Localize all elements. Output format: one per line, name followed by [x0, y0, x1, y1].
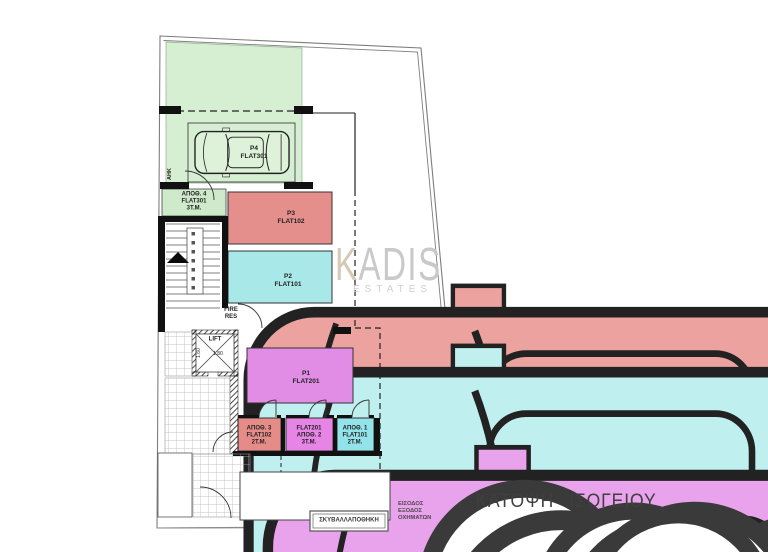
staircase	[166, 224, 220, 308]
storage-4-line3: 3Τ.Μ.	[182, 206, 207, 213]
lift-label: LIFT	[209, 337, 222, 344]
gate-line3: ΟΧΗΜΑΤΩΝ	[398, 515, 431, 522]
watermark-subtitle: ESTATES	[353, 285, 432, 295]
storage-4-label: ΑΠΟΘ. 4 FLAT301 3Τ.Μ.	[182, 192, 207, 213]
storage-2-label: FLAT201 ΑΠΟΘ. 2 3Τ.Μ.	[297, 426, 322, 447]
storage-4-line2: FLAT301	[182, 199, 207, 206]
parking-p3-flat: FLAT102	[278, 218, 305, 226]
parking-p2-label: P2 FLAT101	[275, 273, 302, 289]
fire-line2: RES	[224, 314, 238, 321]
stair-direction-arrow	[167, 252, 189, 263]
watermark-brand-rest: ADIS	[359, 238, 442, 290]
parking-p2-code: P2	[275, 273, 302, 281]
storage-1-line3: 2Τ.Μ.	[343, 440, 368, 447]
storage-3-line3: 2Τ.Μ.	[247, 440, 272, 447]
parking-p4-flat: FLAT301	[241, 153, 268, 161]
parking-p1-code: P1	[293, 370, 320, 378]
lift-width-dim: 1.60	[197, 348, 203, 358]
parking-p4-code: P4	[241, 145, 268, 153]
storage-3-line2: FLAT102	[247, 433, 272, 440]
utility-ahk-label: ΑΗΚ	[167, 168, 173, 180]
parking-p4-label: P4 FLAT301	[241, 145, 268, 161]
parking-p3-label: P3 FLAT102	[278, 210, 305, 226]
garbage-store-label: ΣΚΥΒΑΛΛΑΠΟΘΗΚΗ	[319, 518, 379, 525]
page-title: ΚΑΤΟΨΗ ΙΣΟΓΕΙΟΥ	[475, 491, 656, 513]
parking-p1-flat: FLAT201	[293, 378, 320, 386]
storage-3-line1: ΑΠΟΘ. 3	[247, 426, 272, 433]
storage-2-line3: 3Τ.Μ.	[297, 440, 322, 447]
lift-depth-dim: 1.80	[213, 352, 223, 358]
floor-plan-page: P4 FLAT301 P3 FLAT102 P2 FLAT101 P1 FLAT…	[0, 0, 768, 552]
storage-4-line1: ΑΠΟΘ. 4	[182, 192, 207, 199]
vehicle-gate-label: ΕΙΣΟΔΟΣ ΕΞΟΔΟΣ ΟΧΗΜΑΤΩΝ	[398, 501, 431, 523]
storage-2-line1: FLAT201	[297, 426, 322, 433]
storage-3-label: ΑΠΟΘ. 3 FLAT102 2Τ.Μ.	[247, 426, 272, 447]
fire-line1: FIRE	[224, 307, 238, 314]
storage-1-line2: FLAT101	[343, 433, 368, 440]
fire-reserve-label: FIRE RES	[224, 307, 238, 321]
watermark-brand-initial: K	[335, 238, 359, 290]
parking-p2-flat: FLAT101	[275, 281, 302, 289]
storage-1-label: ΑΠΟΘ. 1 FLAT101 2Τ.Μ.	[343, 426, 368, 447]
gate-line2: ΕΞΟΔΟΣ	[398, 508, 431, 515]
storage-2-line2: ΑΠΟΘ. 2	[297, 433, 322, 440]
watermark-brand: KADIS	[335, 241, 442, 287]
parking-p3-code: P3	[278, 210, 305, 218]
parking-p1-label: P1 FLAT201	[293, 370, 320, 386]
storage-1-line1: ΑΠΟΘ. 1	[343, 426, 368, 433]
gate-line1: ΕΙΣΟΔΟΣ	[398, 501, 431, 508]
